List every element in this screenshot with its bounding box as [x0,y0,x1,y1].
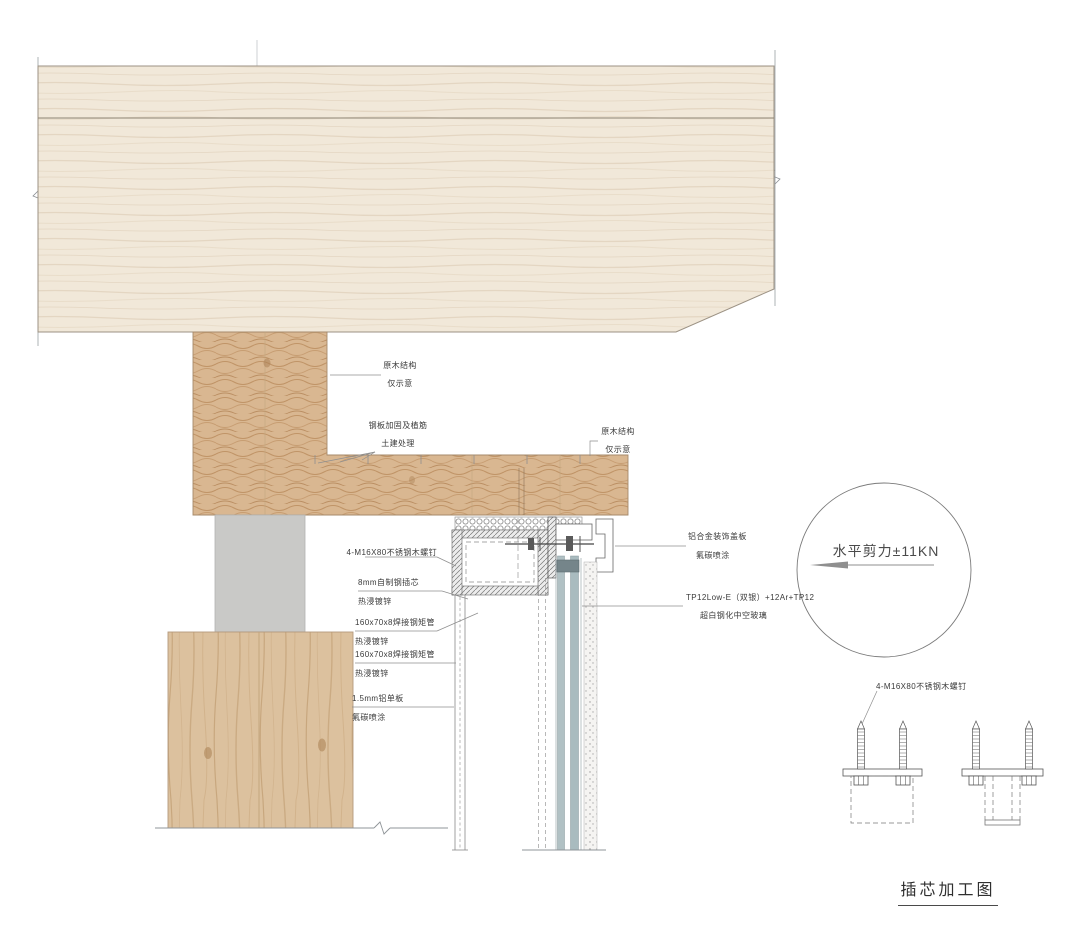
interior-finish-strip [584,562,597,850]
steel-plate-vertical [548,517,556,578]
shear-force-balloon [797,483,971,657]
label-line: 原木结构 [586,423,650,441]
label-glazing: TP12Low-E（双银）+12Ar+TP12 超白钢化中空玻璃 [686,589,846,625]
label-line: 铝合金装饰盖板 [688,527,808,546]
label-line: 氟碳喷涂 [352,708,462,727]
label-line: 仅示意 [366,375,434,393]
drawing-canvas: 原木结构 仅示意 钢板加固及植筋 土建处理 原木结构 仅示意 4-M16X80不… [0,0,1080,942]
wood-knot [409,476,415,484]
insulated-glass-unit [556,556,581,850]
lower-timber-column [168,632,353,828]
detail-title: 插芯加工图 [898,876,998,906]
detail-right-assembly [962,721,1043,825]
label-line: 氟碳喷涂 [688,546,808,565]
label-steel-core: 8mm自制钢插芯 热浸镀锌 [358,573,468,611]
label-line: 160x70x8焊接钢矩管 [355,613,475,632]
gray-column [215,515,305,632]
label-line: 热浸镀锌 [355,664,475,683]
label-wood-screws: 4-M16X80不锈钢木螺钉 [300,543,437,562]
detail-left-assembly [843,721,922,823]
label-screw-detail: 4-M16X80不锈钢木螺钉 [876,677,1006,696]
label-line: 160x70x8焊接钢矩管 [355,645,475,664]
wood-knot [264,359,271,368]
label-line: TP12Low-E（双银）+12Ar+TP12 [686,589,846,607]
label-wood-structure-upper: 原木结构 仅示意 [366,357,434,393]
label-line: 热浸镀锌 [358,592,468,611]
label-line: 4-M16X80不锈钢木螺钉 [300,543,437,562]
label-line: 超白钢化中空玻璃 [686,607,846,625]
label-steel-plate-anchor: 钢板加固及植筋 土建处理 [356,417,440,453]
glass-spacer [557,560,579,572]
label-line: 土建处理 [356,435,440,453]
label-line: 原木结构 [366,357,434,375]
leader-screw-detail [862,691,877,724]
curtain-wall [452,556,606,850]
wood-knot [318,739,326,752]
label-shear-force: 水平剪力±11KN [806,541,966,561]
label-cover-plate: 铝合金装饰盖板 氟碳喷涂 [688,527,808,565]
timber-slab [38,66,774,332]
steel-insert-core [466,542,534,582]
label-line: 8mm自制钢插芯 [358,573,468,592]
label-line: 1.5mm铝单板 [352,689,462,708]
wood-knot [204,747,212,759]
label-line: 仅示意 [586,441,650,459]
label-line: 钢板加固及植筋 [356,417,440,435]
arrow-left-icon [810,562,848,569]
label-steel-tube-lower: 160x70x8焊接钢矩管 热浸镀锌 [355,645,475,683]
label-aluminum-panel: 1.5mm铝单板 氟碳喷涂 [352,689,462,727]
section-drawing [0,0,1080,942]
label-wood-structure-right: 原木结构 仅示意 [586,423,650,459]
insert-core-detail [843,721,1043,825]
aluminum-cover-profile [596,519,613,572]
